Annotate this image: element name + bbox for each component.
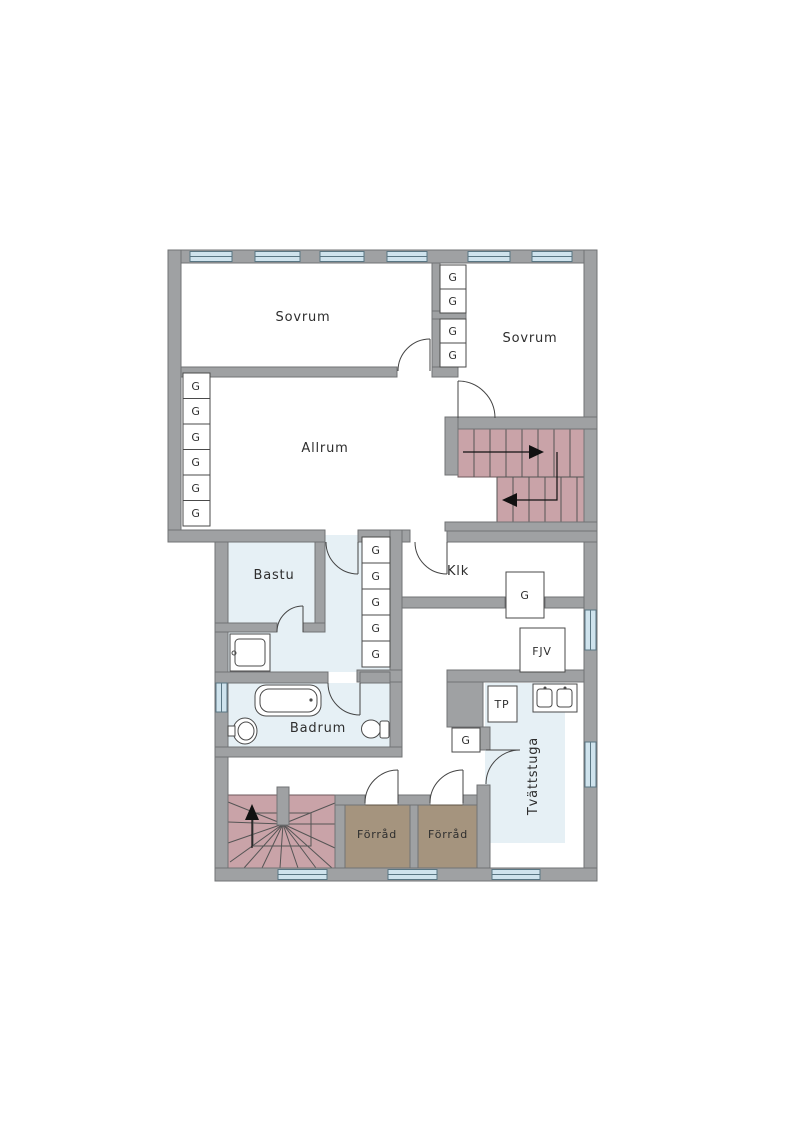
window [388,870,437,880]
window [468,252,510,262]
toilet-icon [362,720,390,738]
room-label-klk: Klk [447,564,469,579]
wardrobe-g-label: G [371,648,380,661]
door [398,339,430,371]
room-label-sovrum-2: Sovrum [503,331,558,346]
room-label-badrum: Badrum [290,721,346,736]
room-label-forrad-2: Förråd [428,828,468,841]
room-label-allrum: Allrum [301,441,348,456]
window [320,252,364,262]
wardrobe-g-label: G [448,349,457,362]
wardrobe-g-label: G [191,405,200,418]
wardrobe-g-label: G [461,734,470,747]
wardrobe-g-label: G [371,596,380,609]
fjv-label: FJV [532,645,552,658]
window [278,870,327,880]
door [415,542,447,574]
window [190,252,232,262]
wardrobe-g-label: G [371,544,380,557]
room-label-sovrum-1: Sovrum [276,310,331,325]
window [255,252,300,262]
wardrobe-g-label: G [371,622,380,635]
tp-label: TP [494,698,510,711]
window [532,252,572,262]
wardrobe-g-label: G [448,295,457,308]
wardrobe-g-label: G [191,431,200,444]
stairs-upper-right-floor [458,429,584,522]
window [387,252,427,262]
shower-icon [230,634,270,671]
window [492,870,540,880]
door [458,381,495,418]
wardrobe-g-label: G [191,380,200,393]
wardrobe-g-label: G [191,456,200,469]
window [585,742,596,787]
room-label-bastu: Bastu [254,568,295,583]
wardrobe-g-label: G [448,271,457,284]
room-label-tvattstuga: Tvättstuga [526,737,541,816]
laundry-double-sink-icon [533,684,577,712]
door [430,770,463,803]
wardrobe-g-label: G [448,325,457,338]
room-label-forrad-1: Förråd [357,828,397,841]
wardrobe-g-label: G [520,589,529,602]
wardrobe-g-label: G [191,507,200,520]
bathtub-icon [255,685,321,716]
floor-plan: Sovrum Sovrum Allrum Bastu Klk Badrum Tv… [0,0,800,1132]
stair-newel-post [277,787,289,825]
wardrobe-g-label: G [191,482,200,495]
floor-plan-page: Sovrum Sovrum Allrum Bastu Klk Badrum Tv… [0,0,800,1132]
door [365,770,398,803]
window [585,610,596,650]
wardrobe-g-label: G [371,570,380,583]
window [216,683,227,712]
